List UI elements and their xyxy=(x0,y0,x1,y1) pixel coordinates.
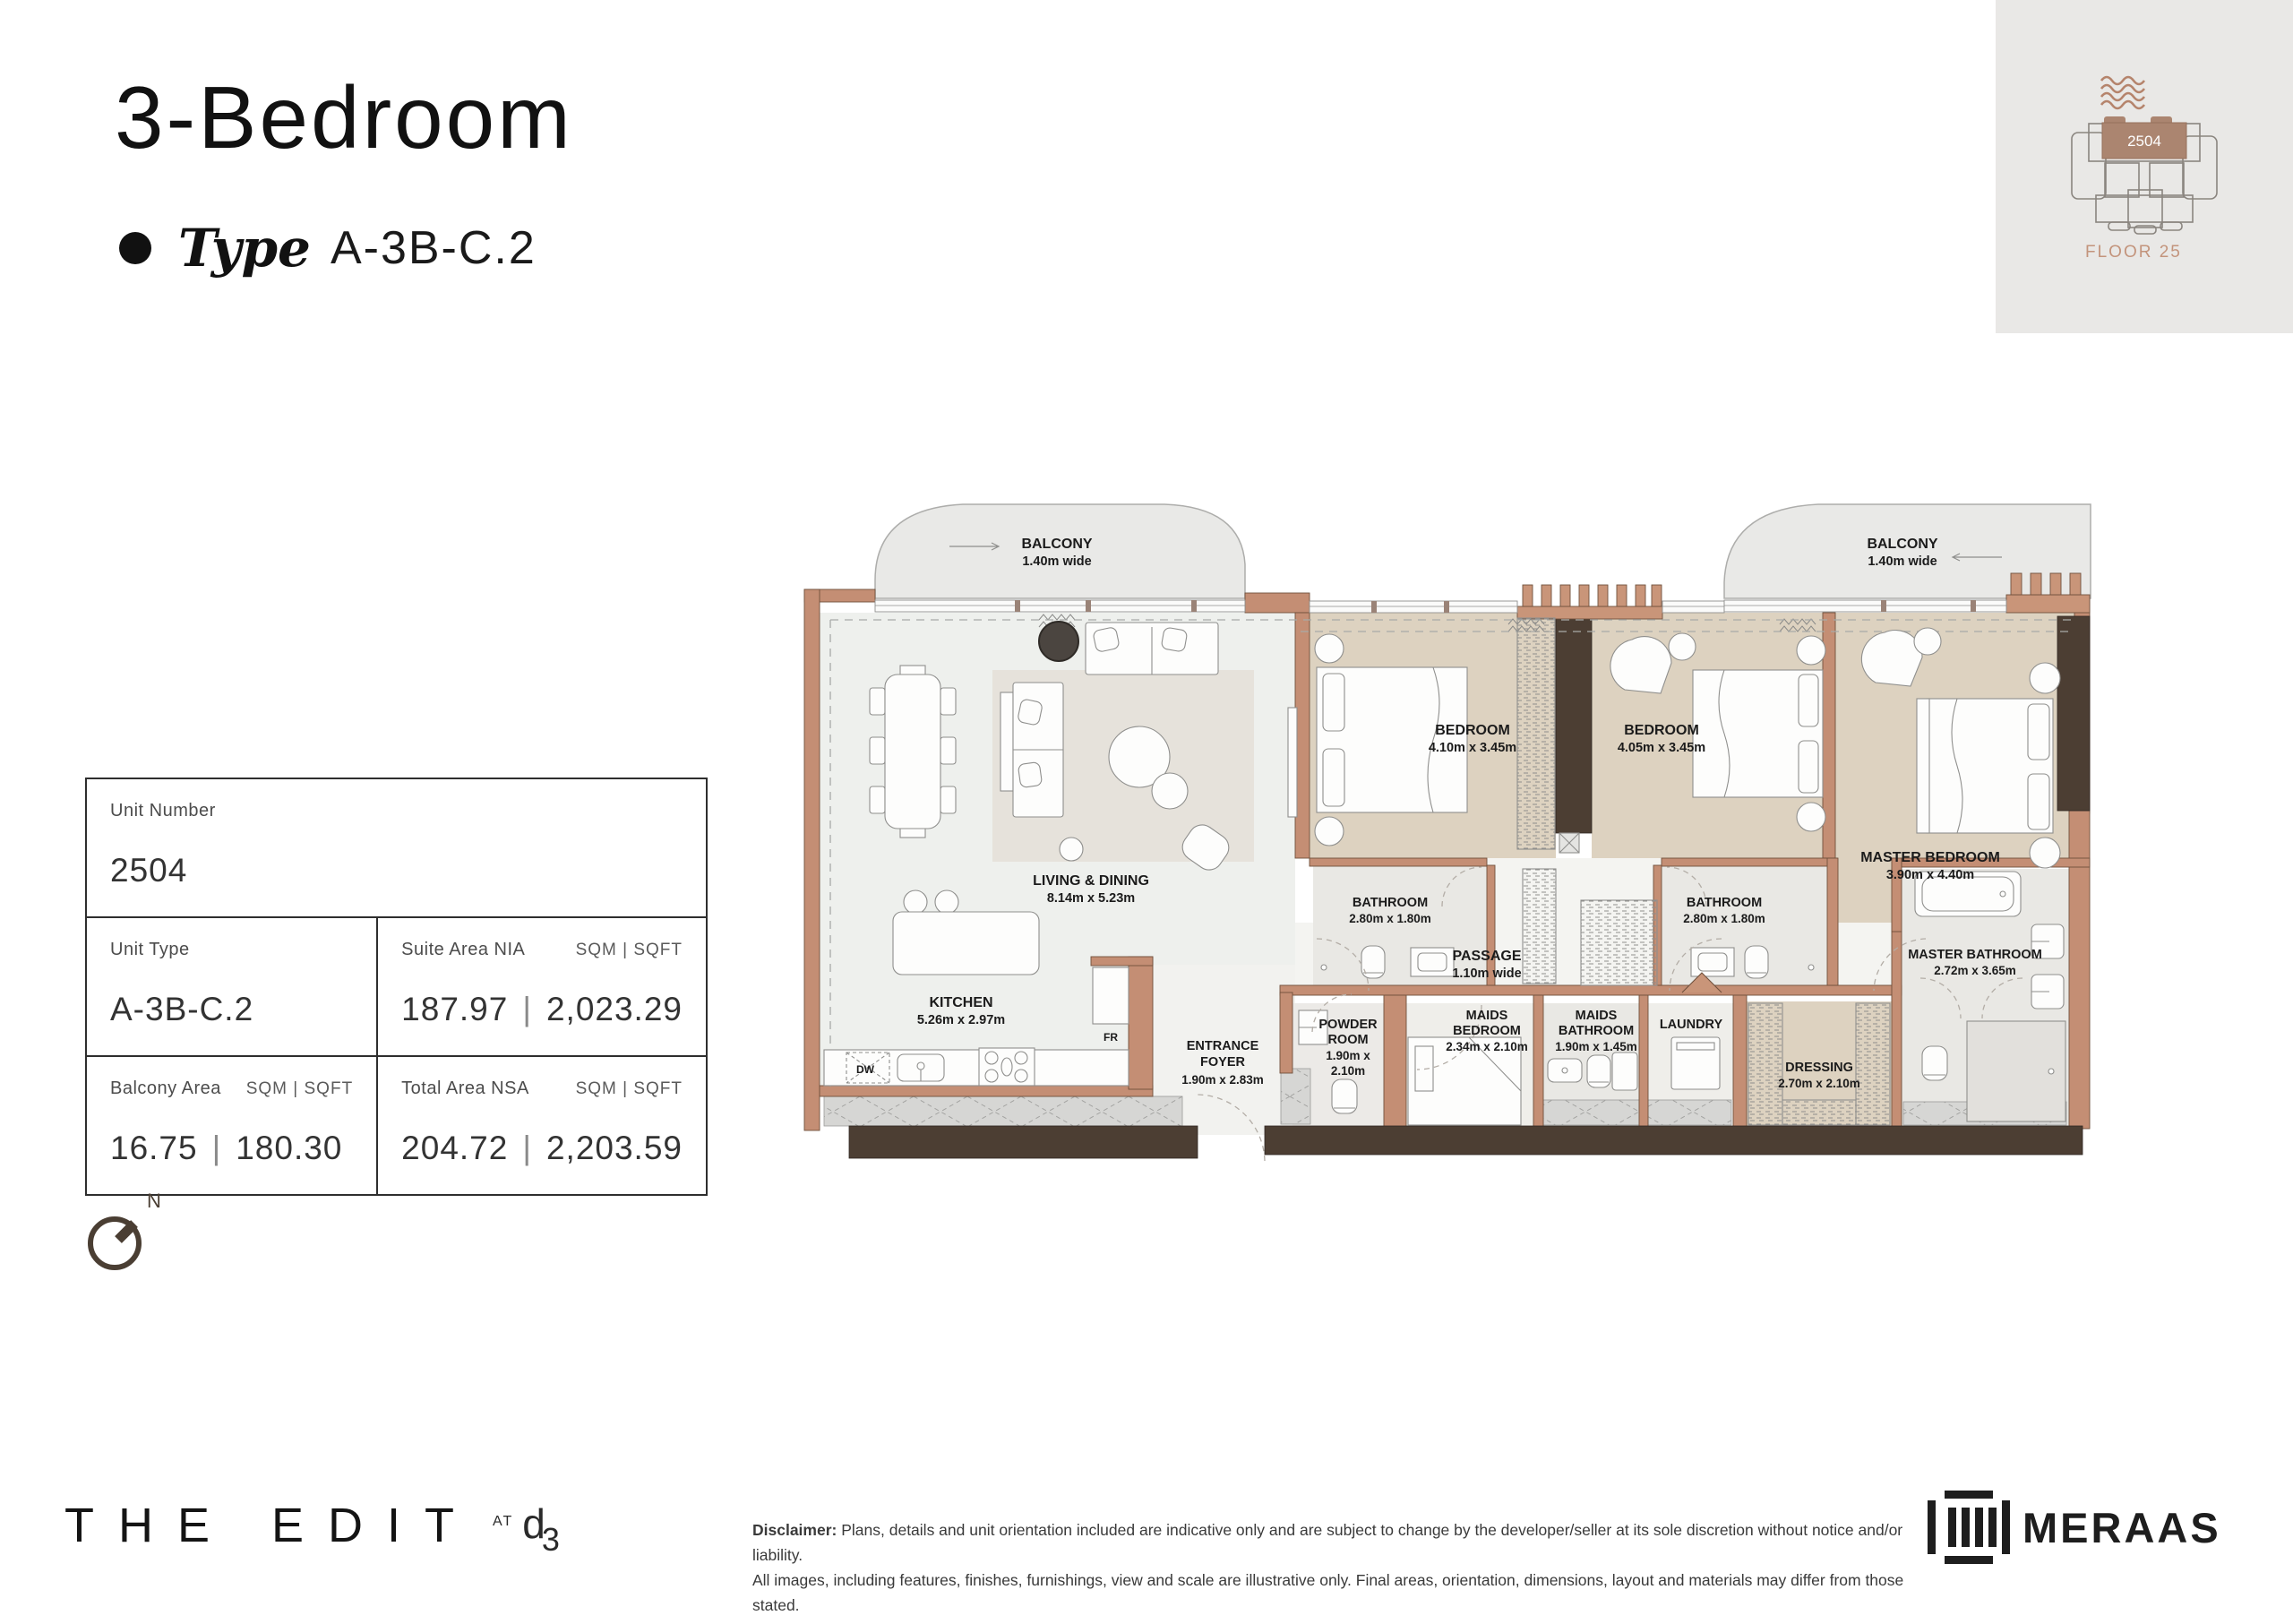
highlighted-unit: 2504 xyxy=(2102,116,2186,159)
dining-table xyxy=(870,666,956,838)
unit-type-heading: Type A-3B-C.2 xyxy=(119,218,537,279)
bullet-icon xyxy=(119,232,151,264)
d3-digit-3: 3 xyxy=(542,1521,560,1558)
suite-area-cell: Suite Area NIA SQM | SQFT 187.97|2,023.2… xyxy=(376,918,706,1055)
maids-bathroom-label-2: BATHROOM xyxy=(1559,1024,1634,1038)
balcony-right-label: BALCONY xyxy=(1867,537,1937,552)
total-area-cell: Total Area NSA SQM | SQFT 204.72|2,203.5… xyxy=(376,1057,706,1194)
dressing-dims: 2.70m x 2.10m xyxy=(1778,1077,1860,1090)
type-script-label: Type xyxy=(178,218,311,279)
north-compass: N xyxy=(75,1188,174,1291)
total-area-units: SQM | SQFT xyxy=(576,1079,683,1099)
floor-label: FLOOR 25 xyxy=(2085,243,2182,262)
unit-type-value: A-3B-C.2 xyxy=(110,991,353,1028)
shaft-box xyxy=(1559,833,1579,853)
balcony-sqm-value: 16.75 xyxy=(110,1130,198,1166)
pipe-divider: | xyxy=(508,991,546,1027)
table-row: Balcony Area SQM | SQFT 16.75|180.30 Tot… xyxy=(87,1055,706,1194)
waves-icon xyxy=(2101,77,2144,108)
passage-label: PASSAGE xyxy=(1452,949,1521,964)
disclaimer-text: Disclaimer: Plans, details and unit orie… xyxy=(752,1517,1917,1618)
bedroom1-dims: 4.10m x 3.45m xyxy=(1429,741,1516,755)
bedroom1-label: BEDROOM xyxy=(1435,723,1510,738)
disclaimer-label: Disclaimer: xyxy=(752,1521,837,1539)
balcony-sqft-value: 180.30 xyxy=(236,1130,342,1166)
total-sqft-value: 2,203.59 xyxy=(546,1130,683,1166)
master-bedroom-label: MASTER BEDROOM xyxy=(1860,850,2000,865)
bathroom2-label: BATHROOM xyxy=(1687,896,1762,910)
powder-dims-2: 2.10m xyxy=(1331,1064,1365,1078)
kitchen-dims: 5.26m x 2.97m xyxy=(917,1013,1005,1027)
north-label: N xyxy=(147,1190,161,1212)
floor-plan: BALCONY 1.40m wide BALCONY 1.40m wide LI… xyxy=(788,484,2105,1214)
kitchen-label: KITCHEN xyxy=(929,995,992,1010)
maids-bathroom-label-1: MAIDS xyxy=(1576,1009,1618,1023)
suite-sqm-value: 187.97 xyxy=(401,991,508,1027)
linen-closet xyxy=(1581,900,1657,985)
sofa-top xyxy=(1086,623,1218,675)
balcony-area-label: Balcony Area xyxy=(110,1078,221,1099)
page-title: 3-Bedroom xyxy=(115,67,573,168)
maids-bedroom-dims: 2.34m x 2.10m xyxy=(1446,1040,1528,1053)
total-sqm-value: 204.72 xyxy=(401,1130,508,1166)
master-bathroom-dims: 2.72m x 3.65m xyxy=(1934,964,2016,977)
plant xyxy=(1039,622,1078,661)
unit-locator-panel: 2504 FLOOR 25 xyxy=(1996,0,2293,333)
unit-locator-graphic: 2504 FLOOR 25 xyxy=(1996,0,2293,333)
compass-needle xyxy=(118,1224,134,1240)
unit-number-highlight: 2504 xyxy=(2127,133,2161,150)
meraas-wordmark: MERAAS xyxy=(2022,1503,2221,1552)
fridge xyxy=(1093,967,1129,1024)
coffee-table-small xyxy=(1152,773,1188,809)
dressing-closet xyxy=(1782,1100,1856,1125)
bedroom2-label: BEDROOM xyxy=(1624,723,1699,738)
foyer-label-2: FOYER xyxy=(1200,1055,1245,1070)
disclaimer-line2: All images, including features, finishes… xyxy=(752,1571,1903,1614)
bathroom1-dims: 2.80m x 1.80m xyxy=(1349,912,1431,925)
wardrobe-shelves-bedroom1 xyxy=(1517,618,1555,849)
meraas-icon xyxy=(1928,1491,2010,1564)
laundry-label: LAUNDRY xyxy=(1660,1018,1723,1032)
dressing-label: DRESSING xyxy=(1785,1061,1853,1075)
unit-type-cell: Unit Type A-3B-C.2 xyxy=(87,918,376,1055)
pipe-divider: | xyxy=(198,1130,236,1166)
total-area-label: Total Area NSA xyxy=(401,1078,529,1099)
bathroom2-dims: 2.80m x 1.80m xyxy=(1683,912,1765,925)
living-dining-label: LIVING & DINING xyxy=(1033,873,1149,889)
unit-number-cell: Unit Number 2504 xyxy=(87,779,706,916)
balcony-left-label: BALCONY xyxy=(1021,537,1092,552)
type-value: A-3B-C.2 xyxy=(331,221,537,275)
dressing-closet xyxy=(1748,1003,1782,1125)
maids-bathroom-dims: 1.90m x 1.45m xyxy=(1555,1040,1637,1053)
master-bathroom-label: MASTER BATHROOM xyxy=(1908,948,2042,962)
maids-bedroom-label-2: BEDROOM xyxy=(1453,1024,1521,1038)
fridge-marker: FR xyxy=(1104,1031,1118,1044)
bedroom2-dims: 4.05m x 3.45m xyxy=(1618,741,1705,755)
suite-area-label: Suite Area NIA xyxy=(401,940,525,960)
pipe-divider: | xyxy=(508,1130,546,1166)
unit-type-label: Unit Type xyxy=(110,940,190,960)
balcony-left-dims: 1.40m wide xyxy=(1022,554,1091,569)
suite-sqft-value: 2,023.29 xyxy=(546,991,683,1027)
unit-info-table: Unit Number 2504 Unit Type A-3B-C.2 Suit… xyxy=(85,778,708,1196)
disclaimer-line1: Plans, details and unit orientation incl… xyxy=(752,1521,1902,1564)
powder-dims-1: 1.90m x xyxy=(1326,1049,1370,1062)
unit-number-label: Unit Number xyxy=(110,801,216,821)
tv-console xyxy=(1288,708,1297,817)
suite-area-units: SQM | SQFT xyxy=(576,941,683,960)
table-row: Unit Type A-3B-C.2 Suite Area NIA SQM | … xyxy=(87,916,706,1055)
foyer-dims: 1.90m x 2.83m xyxy=(1181,1073,1264,1087)
balcony-area-units: SQM | SQFT xyxy=(246,1079,353,1099)
living-dining-dims: 8.14m x 5.23m xyxy=(1047,891,1135,906)
foyer-label-1: ENTRANCE xyxy=(1187,1039,1259,1053)
powder-label-1: POWDER xyxy=(1318,1018,1378,1032)
d3-logo: d3 xyxy=(522,1499,563,1548)
powder-label-2: ROOM xyxy=(1327,1033,1368,1047)
linen-closet xyxy=(1523,869,1556,984)
side-table xyxy=(1060,838,1083,861)
dishwasher-marker: DW xyxy=(856,1063,875,1076)
balcony-right-dims: 1.40m wide xyxy=(1868,554,1937,569)
brand-at-label: AT xyxy=(493,1514,513,1530)
bathroom1-label: BATHROOM xyxy=(1353,896,1428,910)
unit-number-value: 2504 xyxy=(110,852,683,889)
balcony-area-cell: Balcony Area SQM | SQFT 16.75|180.30 xyxy=(87,1057,376,1194)
passage-dims: 1.10m wide xyxy=(1452,967,1521,981)
table-row: Unit Number 2504 xyxy=(87,779,706,916)
the-edit-logo: THE EDIT AT d3 xyxy=(64,1498,563,1553)
floorplan-page: 3-Bedroom Type A-3B-C.2 xyxy=(0,0,2293,1624)
laundry-machine xyxy=(1671,1037,1720,1089)
maids-bedroom-label-1: MAIDS xyxy=(1466,1009,1508,1023)
the-edit-wordmark: THE EDIT xyxy=(64,1498,478,1553)
meraas-logo: MERAAS xyxy=(1928,1491,2221,1564)
master-bedroom-dims: 3.90m x 4.40m xyxy=(1886,868,1974,882)
dressing-closet xyxy=(1856,1003,1890,1125)
